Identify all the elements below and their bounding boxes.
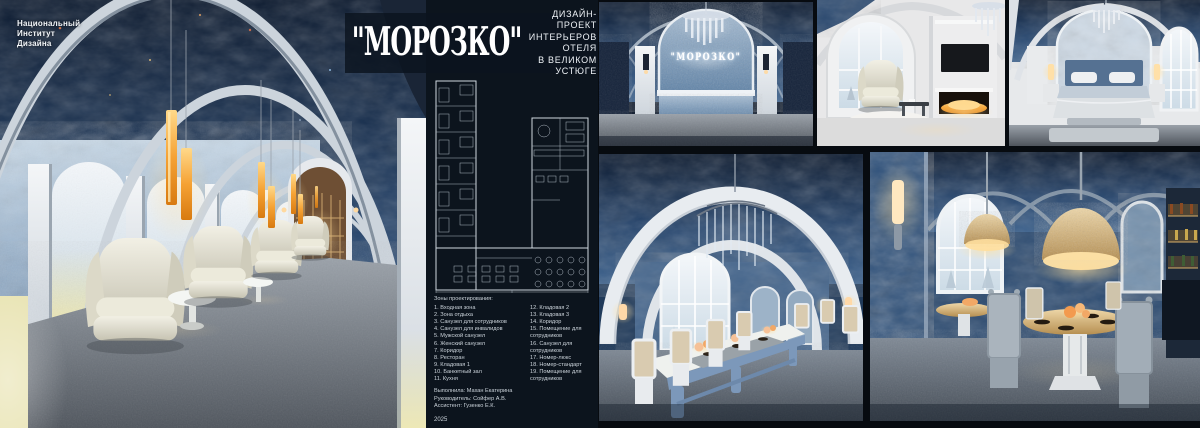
hotel-sign: "МОРОЗКО" <box>671 50 742 63</box>
render-banquet-hall <box>599 154 863 421</box>
year-label: 2025 <box>434 417 447 423</box>
legend-item: 10. Банкетный зал <box>434 369 530 376</box>
bar-shelves <box>1162 188 1200 358</box>
render-restaurant-hall <box>870 152 1200 421</box>
legend-heading: Зоны проектирования: <box>434 296 594 303</box>
legend-item: 17. Номер-люкс <box>530 355 594 362</box>
legend-column-1: 1. Входная зона 2. Зона отдыха 3. Санузе… <box>434 305 530 383</box>
legend-column-2: 12. Кладовая 2 13. Кладовая 3 14. Коридо… <box>530 305 594 383</box>
legend-item: 6. Женский санузел <box>434 341 530 348</box>
legend-item: 8. Ресторан <box>434 355 530 362</box>
subtitle-line: ИНТЕРЬЕРОВ ОТЕЛЯ <box>529 32 597 55</box>
banquet-scene <box>599 154 863 421</box>
fireplace-scene <box>817 0 1005 146</box>
design-zones-legend: Зоны проектирования: 1. Входная зона 2. … <box>434 296 594 383</box>
legend-item: 13. Кладовая 3 <box>530 312 594 319</box>
legend-item: 3. Санузел для сотрудников <box>434 319 530 326</box>
title-block: "МОРОЗКО" ДИЗАЙН-ПРОЕКТ ИНТЕРЬЕРОВ ОТЕЛЯ… <box>345 13 598 73</box>
design-poster: Зоны проектирования: 1. Входная зона 2. … <box>0 0 1200 428</box>
institute-line: Дизайна <box>17 39 80 49</box>
subtitle-line: ДИЗАЙН-ПРОЕКТ <box>529 9 597 32</box>
legend-item: 16. Санузел для сотрудников <box>530 341 594 355</box>
institute-line: Институт <box>17 29 80 39</box>
render-fireplace-suite <box>817 0 1005 146</box>
credits: Выполнила: Махан Екатерина Руководитель:… <box>434 388 512 411</box>
credit-line: Руководитель: Сойфер А.В. <box>434 396 512 404</box>
legend-item: 14. Коридор <box>530 319 594 326</box>
legend-item: 15. Помещение для сотрудников <box>530 326 594 340</box>
legend-item: 12. Кладовая 2 <box>530 305 594 312</box>
institute-line: Национальный <box>17 19 80 29</box>
project-subtitle: ДИЗАЙН-ПРОЕКТ ИНТЕРЬЕРОВ ОТЕЛЯ В ВЕЛИКОМ… <box>529 9 605 78</box>
bedroom-scene <box>1009 0 1200 146</box>
render-reception-hall: "МОРОЗКО" <box>599 2 813 146</box>
credit-line: Выполнила: Махан Екатерина <box>434 388 512 396</box>
credit-line: Ассистент: Гузенко Е.К. <box>434 403 512 411</box>
legend-item: 9. Кладовая 1 <box>434 362 530 369</box>
legend-item: 2. Зона отдыха <box>434 312 530 319</box>
floor-plan <box>434 80 590 293</box>
legend-item: 7. Коридор <box>434 348 530 355</box>
project-title: "МОРОЗКО" <box>345 24 521 63</box>
legend-item: 11. Кухня <box>434 376 530 383</box>
institute-label: Национальный Институт Дизайна <box>17 19 80 49</box>
subtitle-line: В ВЕЛИКОМ УСТЮГЕ <box>529 55 597 78</box>
restaurant-scene <box>870 152 1200 421</box>
legend-item: 5. Мужской санузел <box>434 333 530 340</box>
legend-item: 19. Помещение для сотрудников <box>530 369 594 383</box>
legend-item: 1. Входная зона <box>434 305 530 312</box>
reception-scene <box>599 2 813 146</box>
legend-item: 18. Номер-стандарт <box>530 362 594 369</box>
render-bedroom-suite <box>1009 0 1200 146</box>
